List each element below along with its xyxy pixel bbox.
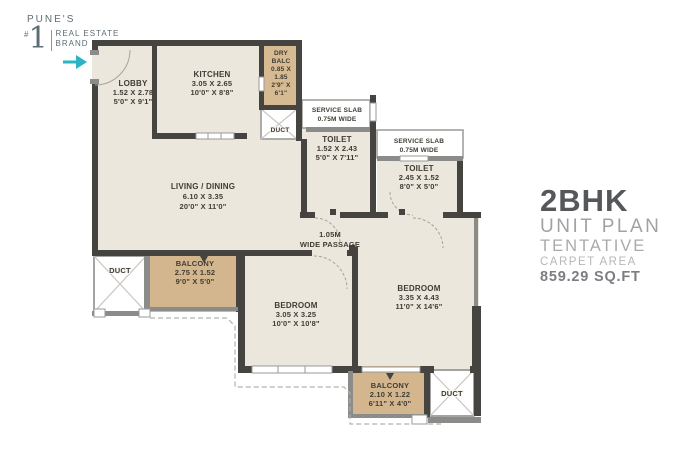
unit-type-title: 2BHK: [540, 186, 661, 216]
balcony-bottom-metric: 2.10 X 1.22: [370, 390, 411, 399]
duct-top-label: DUCT: [271, 127, 290, 134]
window: [400, 156, 428, 161]
duct-bottom-label: DUCT: [441, 389, 463, 398]
tentative-label: TENTATIVE: [540, 237, 661, 255]
wall-segment: [243, 250, 312, 256]
wall-segment: [301, 139, 307, 213]
dry-balcony-metric: 0.85 X: [271, 66, 291, 73]
wall-segment: [144, 250, 243, 256]
lobby-label: LOBBY: [119, 79, 148, 88]
carpet-area-value: 859.29 SQ.FT: [540, 269, 661, 286]
wall-segment: [259, 46, 264, 77]
kitchen-imperial: 10'0" X 8'8": [190, 88, 233, 97]
wall-segment: [234, 133, 247, 139]
wall-segment: [296, 40, 302, 141]
service-slab-1-label: SERVICE SLAB: [312, 107, 362, 114]
wall-segment: [152, 133, 196, 139]
duct-left-label: DUCT: [109, 266, 131, 275]
wall-segment: [352, 247, 358, 367]
toilet-2-metric: 2.45 X 1.52: [399, 173, 440, 182]
window: [259, 77, 264, 91]
service-slab-1-box: [302, 100, 370, 128]
step-slab: [428, 417, 481, 423]
wall-segment: [300, 212, 315, 218]
window: [196, 133, 234, 139]
door-jamb: [90, 50, 99, 55]
wall-segment: [474, 370, 481, 416]
wall-segment: [443, 212, 481, 218]
bedroom-right-label: BEDROOM: [397, 284, 440, 293]
kitchen-label: KITCHEN: [194, 70, 231, 79]
balcony-bottom-label: BALCONY: [371, 381, 409, 390]
unit-plan-label: UNIT PLAN: [540, 216, 661, 237]
dry-balcony-label: BALC: [272, 58, 291, 65]
service-slab-2-label: SERVICE SLAB: [394, 138, 444, 145]
bedroom-left-imperial: 10'0" X 10'8": [272, 319, 320, 328]
window: [362, 367, 420, 372]
wall-segment: [457, 158, 463, 218]
living-dining-imperial: 20'0" X 11'0": [179, 202, 226, 211]
wall-segment-light: [474, 218, 478, 306]
living-dining-label: LIVING / DINING: [171, 182, 235, 191]
bedroom-right-metric: 3.35 X 4.43: [399, 293, 440, 302]
wall-segment: [259, 105, 302, 110]
unit-info-block: 2BHK UNIT PLAN TENTATIVE CARPET AREA 859…: [540, 186, 661, 286]
threshold-tab: [94, 309, 105, 317]
wall-segment: [424, 370, 430, 418]
balcony-bottom-imperial: 6'11" X 4'0": [369, 399, 412, 408]
floor-plan-page: PUNE'S # 1 REAL ESTATE BRAND: [0, 0, 700, 466]
balcony-railing: [150, 307, 238, 311]
bedroom-left-label: BEDROOM: [274, 301, 317, 310]
toilet-1-label: TOILET: [322, 135, 352, 144]
toilet-2-label: TOILET: [404, 164, 434, 173]
service-slab-1-label: 0.75M WIDE: [318, 116, 357, 123]
threshold-tab: [412, 415, 427, 424]
balcony-left-metric: 2.75 X 1.52: [175, 268, 216, 277]
service-slab-2-label: 0.75M WIDE: [400, 147, 439, 154]
bedroom-right-imperial: 11'0" X 14'6": [395, 302, 442, 311]
wall-segment: [332, 366, 358, 373]
toilet-2-imperial: 8'0" X 5'0": [400, 182, 439, 191]
wall-segment: [92, 84, 98, 256]
living-dining-metric: 6.10 X 3.35: [183, 192, 224, 201]
wall-segment: [472, 306, 481, 368]
toilet-1-metric: 1.52 X 2.43: [317, 144, 358, 153]
hinge-marker: [399, 209, 405, 215]
passage-label: 1.05M: [319, 230, 341, 239]
passage-label: WIDE PASSAGE: [300, 240, 360, 249]
kitchen-metric: 3.05 X 2.65: [192, 79, 233, 88]
window: [252, 366, 332, 373]
bedroom-left-metric: 3.05 X 3.25: [276, 310, 317, 319]
wall-segment: [340, 212, 388, 218]
dry-balcony-imperial: 2'9" X: [271, 82, 291, 89]
wall-segment: [92, 250, 150, 256]
window: [370, 103, 376, 121]
balcony-left-label: BALCONY: [176, 259, 214, 268]
wall-segment-light: [306, 127, 370, 132]
dry-balcony-metric: 1.85: [274, 74, 288, 81]
wall-segment-light: [144, 256, 150, 312]
threshold-tab: [139, 309, 150, 317]
wall-segment: [259, 91, 264, 105]
hinge-marker: [330, 209, 336, 215]
lobby-metric: 1.52 X 2.78: [113, 88, 154, 97]
carpet-area-label: CARPET AREA: [540, 256, 661, 269]
wall-segment: [358, 366, 362, 373]
dry-balcony-label: DRY: [274, 50, 289, 57]
dry-balcony-imperial: 6'1": [275, 90, 288, 97]
wall-segment: [92, 40, 302, 46]
wall-segment: [238, 366, 252, 373]
wall-segment: [236, 250, 245, 312]
wall-segment: [370, 121, 376, 218]
door-jamb: [90, 79, 99, 84]
wall-segment: [370, 95, 376, 103]
toilet-1-imperial: 5'0" X 7'11": [316, 153, 359, 162]
balcony-left-imperial: 9'0" X 5'0": [176, 277, 215, 286]
lobby-imperial: 5'0" X 9'1": [114, 97, 153, 106]
